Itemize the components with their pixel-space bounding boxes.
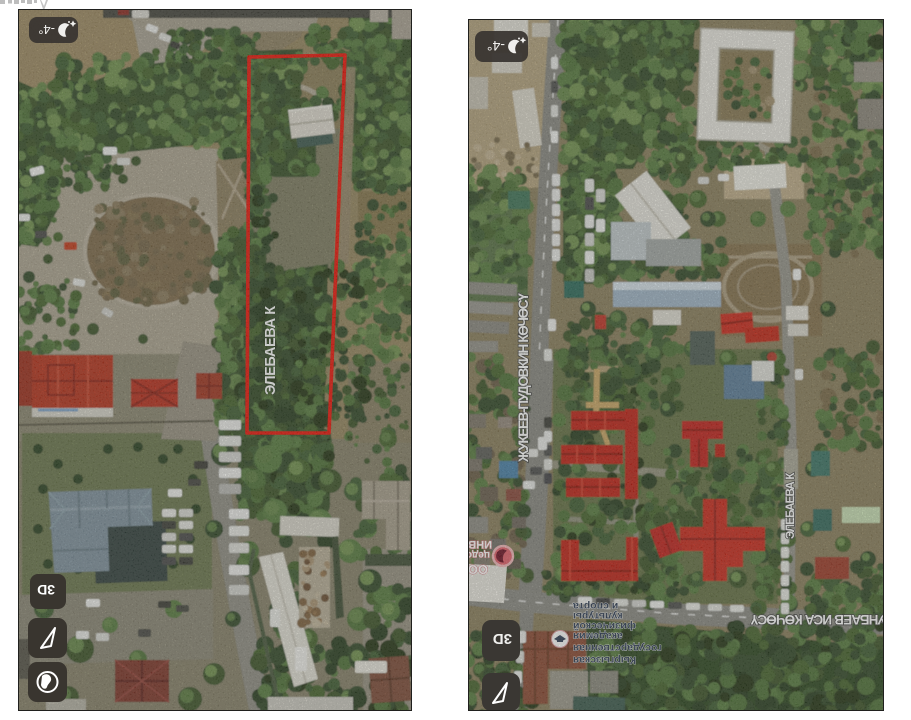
svg-text:3D: 3D <box>37 582 55 598</box>
svg-text:-4°: -4° <box>38 22 55 37</box>
